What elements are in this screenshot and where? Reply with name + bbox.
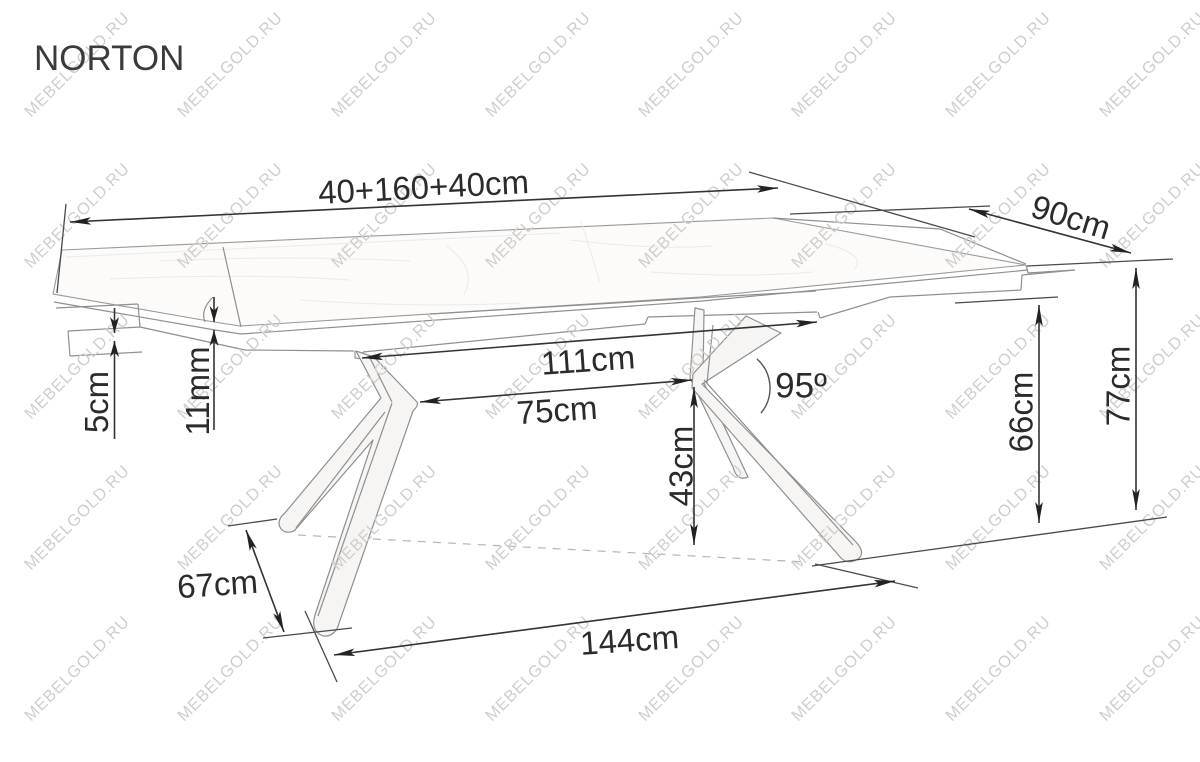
svg-text:95º: 95º [775,367,827,406]
svg-text:66cm: 66cm [1003,372,1040,453]
svg-text:75cm: 75cm [515,389,598,432]
svg-text:111cm: 111cm [540,338,637,381]
svg-text:43cm: 43cm [663,426,700,507]
svg-text:67cm: 67cm [176,563,259,606]
svg-text:5cm: 5cm [78,371,115,433]
svg-text:11mm: 11mm [179,346,216,435]
svg-text:NORTON: NORTON [34,39,184,78]
svg-text:77cm: 77cm [1100,346,1137,427]
svg-text:144cm: 144cm [579,618,680,662]
